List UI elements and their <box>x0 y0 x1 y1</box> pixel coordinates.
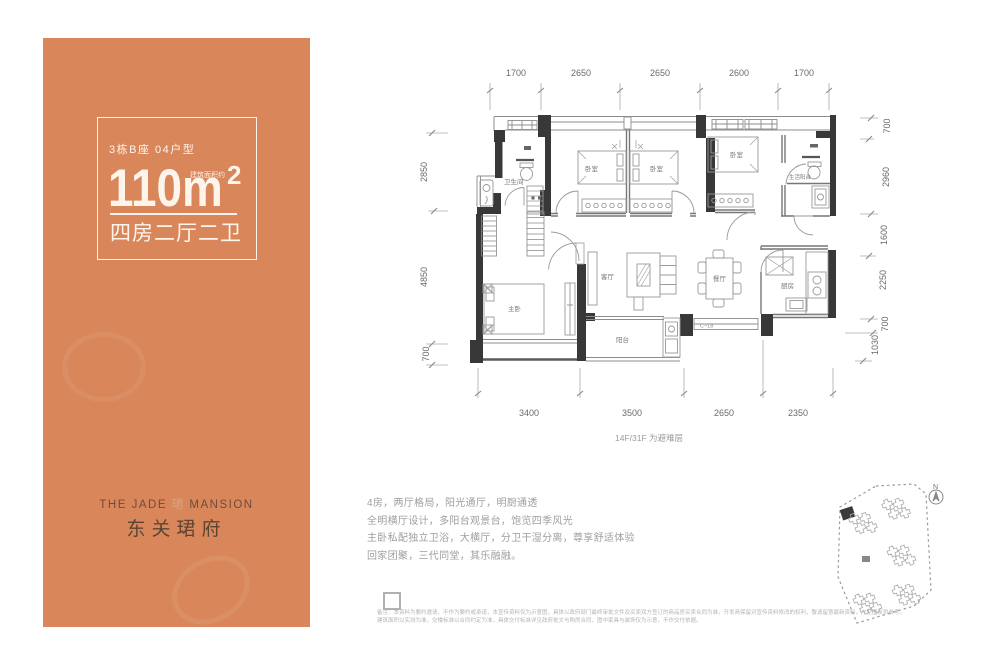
svg-text:1600: 1600 <box>879 225 889 245</box>
svg-text:卫生间: 卫生间 <box>504 177 524 186</box>
svg-text:2350: 2350 <box>788 408 808 418</box>
svg-text:生活阳台: 生活阳台 <box>789 173 812 181</box>
svg-text:14F/31F 为避难层: 14F/31F 为避难层 <box>615 433 683 443</box>
svg-text:2650: 2650 <box>714 408 734 418</box>
svg-text:3400: 3400 <box>519 408 539 418</box>
svg-text:2650: 2650 <box>650 68 670 78</box>
svg-text:卧室: 卧室 <box>730 150 744 159</box>
svg-text:卧室: 卧室 <box>650 164 664 173</box>
svg-text:客厅: 客厅 <box>601 272 615 281</box>
svg-text:1700: 1700 <box>506 68 526 78</box>
svg-text:2960: 2960 <box>881 167 891 187</box>
svg-text:卧室: 卧室 <box>585 164 599 173</box>
svg-text:2850: 2850 <box>419 162 429 182</box>
svg-text:厨房: 厨房 <box>781 281 794 290</box>
svg-text:2600: 2600 <box>729 68 749 78</box>
svg-text:N: N <box>933 484 938 491</box>
svg-text:2250: 2250 <box>878 270 888 290</box>
svg-text:1700: 1700 <box>794 68 814 78</box>
svg-text:700: 700 <box>421 346 431 361</box>
svg-text:阳台: 阳台 <box>616 335 629 344</box>
svg-text:C~18: C~18 <box>700 324 713 330</box>
svg-text:2650: 2650 <box>571 68 591 78</box>
svg-text:4850: 4850 <box>419 267 429 287</box>
svg-text:700: 700 <box>882 118 892 133</box>
svg-text:餐厅: 餐厅 <box>713 274 727 283</box>
svg-text:3500: 3500 <box>622 408 642 418</box>
svg-text:主卧: 主卧 <box>508 304 522 313</box>
svg-text:1030: 1030 <box>870 335 880 355</box>
svg-text:700: 700 <box>880 316 890 331</box>
